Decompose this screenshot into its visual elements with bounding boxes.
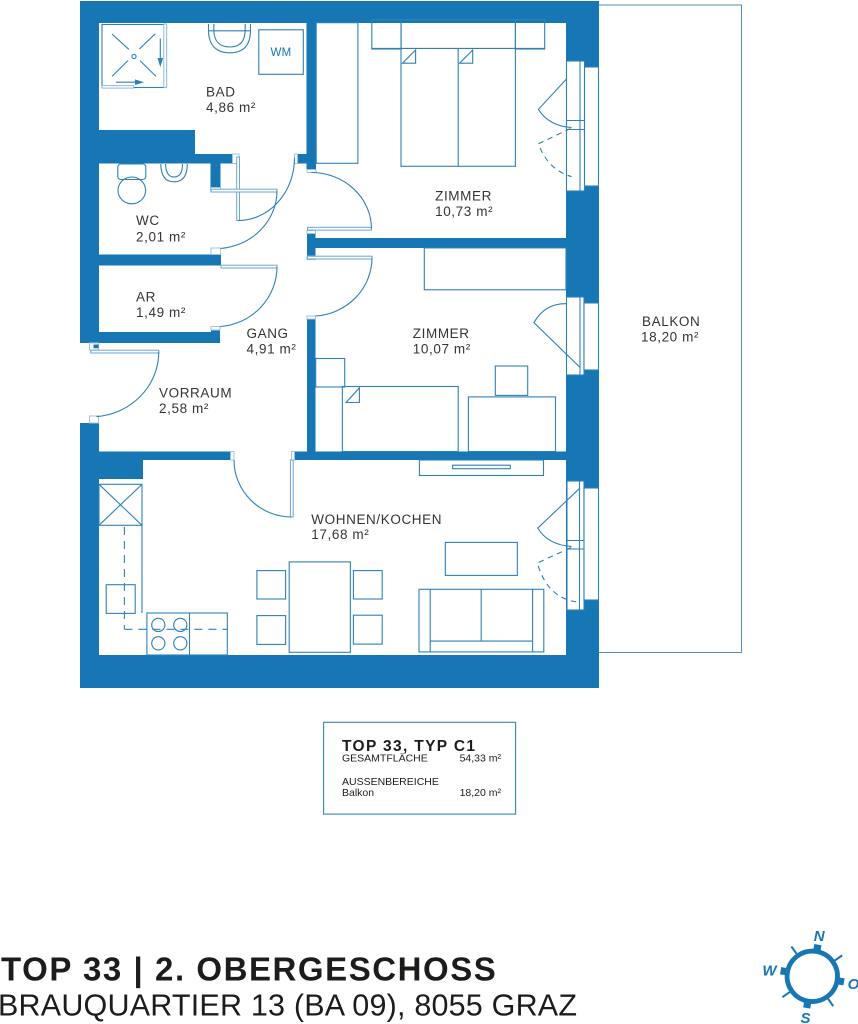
svg-text:10,73 m²: 10,73 m² [435, 204, 493, 219]
svg-text:2,01 m²: 2,01 m² [136, 230, 186, 245]
svg-text:Balkon: Balkon [342, 787, 374, 799]
svg-text:TOP 33 | 2. OBERGESCHOSS: TOP 33 | 2. OBERGESCHOSS [1, 951, 497, 988]
svg-text:10,07 m²: 10,07 m² [413, 342, 471, 357]
svg-text:ZIMMER: ZIMMER [413, 326, 470, 341]
svg-text:ZIMMER: ZIMMER [435, 188, 492, 203]
svg-text:17,68 m²: 17,68 m² [311, 527, 369, 542]
svg-text:WOHNEN/KOCHEN: WOHNEN/KOCHEN [311, 512, 442, 527]
svg-text:BAD: BAD [206, 85, 236, 100]
svg-text:4,91 m²: 4,91 m² [247, 342, 297, 357]
svg-text:1,49 m²: 1,49 m² [136, 305, 186, 320]
svg-text:GESAMTFLÄCHE: GESAMTFLÄCHE [342, 753, 428, 765]
svg-text:W: W [762, 963, 778, 980]
svg-text:AUSSENBEREICHE: AUSSENBEREICHE [342, 776, 439, 788]
svg-text:WC: WC [136, 213, 160, 228]
svg-text:WM: WM [270, 47, 291, 59]
svg-text:BALKON: BALKON [642, 314, 700, 329]
svg-text:VORRAUM: VORRAUM [159, 386, 232, 401]
svg-text:BRAUQUARTIER 13 (BA 09), 8055: BRAUQUARTIER 13 (BA 09), 8055 GRAZ [0, 988, 577, 1022]
svg-text:18,20 m²: 18,20 m² [460, 787, 502, 799]
svg-text:S: S [800, 1010, 810, 1024]
svg-text:18,20 m²: 18,20 m² [641, 330, 699, 345]
svg-text:N: N [814, 928, 826, 945]
svg-text:4,86 m²: 4,86 m² [206, 100, 256, 115]
svg-text:54,33 m²: 54,33 m² [460, 753, 502, 765]
svg-text:2,58 m²: 2,58 m² [159, 401, 209, 416]
svg-text:GANG: GANG [247, 326, 289, 341]
svg-text:AR: AR [136, 290, 156, 305]
svg-text:O: O [848, 976, 858, 993]
